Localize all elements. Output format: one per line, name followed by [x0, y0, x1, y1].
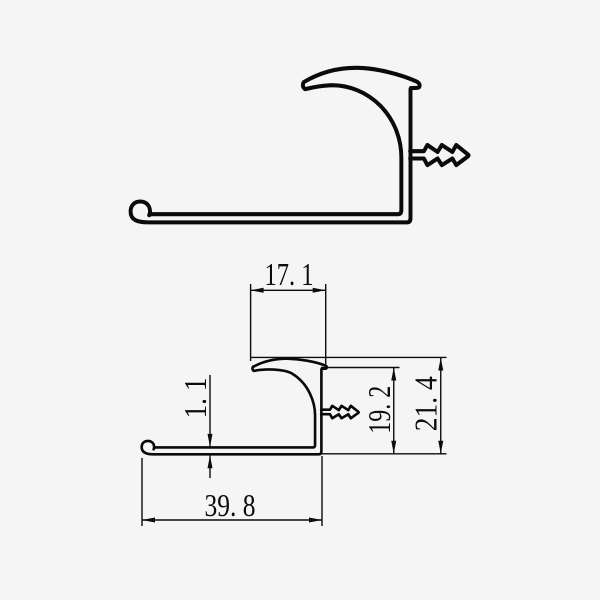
svg-text:1. 1: 1. 1 — [177, 378, 213, 419]
svg-text:39. 8: 39. 8 — [205, 487, 256, 523]
svg-text:17. 1: 17. 1 — [265, 256, 314, 292]
svg-text:19. 2: 19. 2 — [361, 386, 397, 434]
svg-text:21. 4: 21. 4 — [407, 376, 443, 431]
